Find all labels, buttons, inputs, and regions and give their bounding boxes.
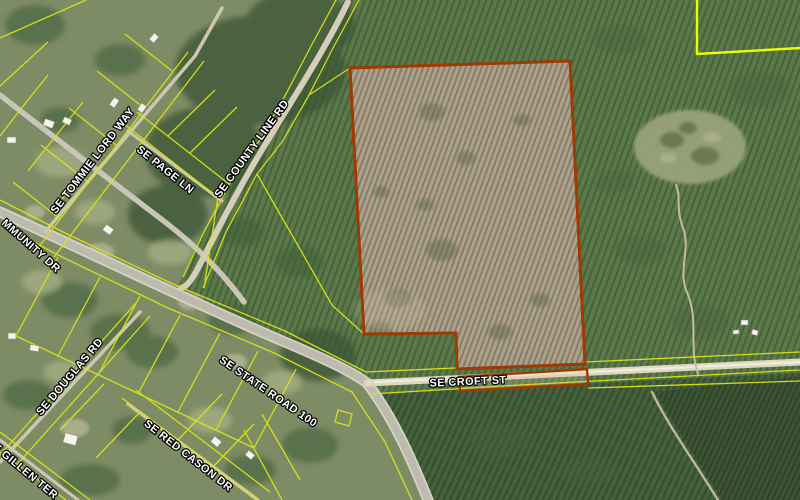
map-canvas: MMUNITY DR SE TOMMIE LORD WAY SE PAGE LN… [0,0,800,500]
aerial-map[interactable]: MMUNITY DR SE TOMMIE LORD WAY SE PAGE LN… [0,0,800,500]
